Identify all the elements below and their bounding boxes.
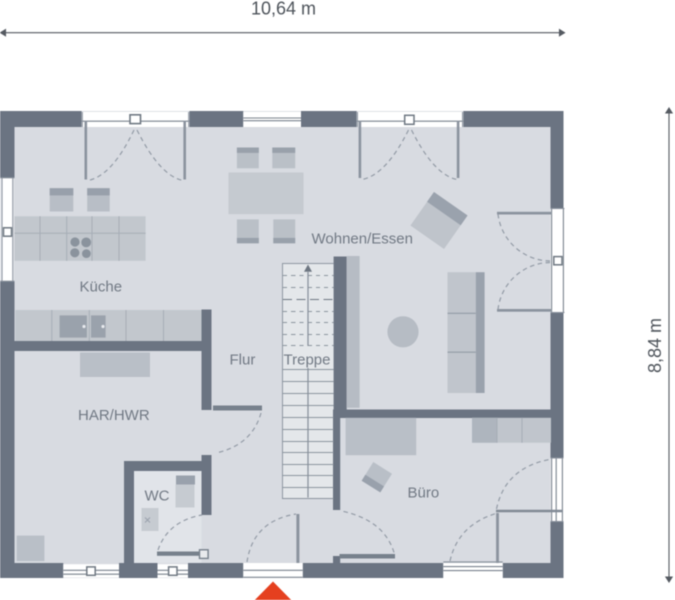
svg-text:Flur: Flur xyxy=(230,352,256,369)
svg-text:HAR/HWR: HAR/HWR xyxy=(78,407,150,424)
svg-text:Büro: Büro xyxy=(408,485,440,502)
svg-text:Wohnen/Essen: Wohnen/Essen xyxy=(312,231,413,248)
svg-text:WC: WC xyxy=(145,488,170,505)
svg-text:10,64 m: 10,64 m xyxy=(251,0,316,19)
svg-text:Treppe: Treppe xyxy=(284,352,331,369)
svg-text:8,84 m: 8,84 m xyxy=(645,318,665,373)
svg-text:Küche: Küche xyxy=(80,279,123,296)
